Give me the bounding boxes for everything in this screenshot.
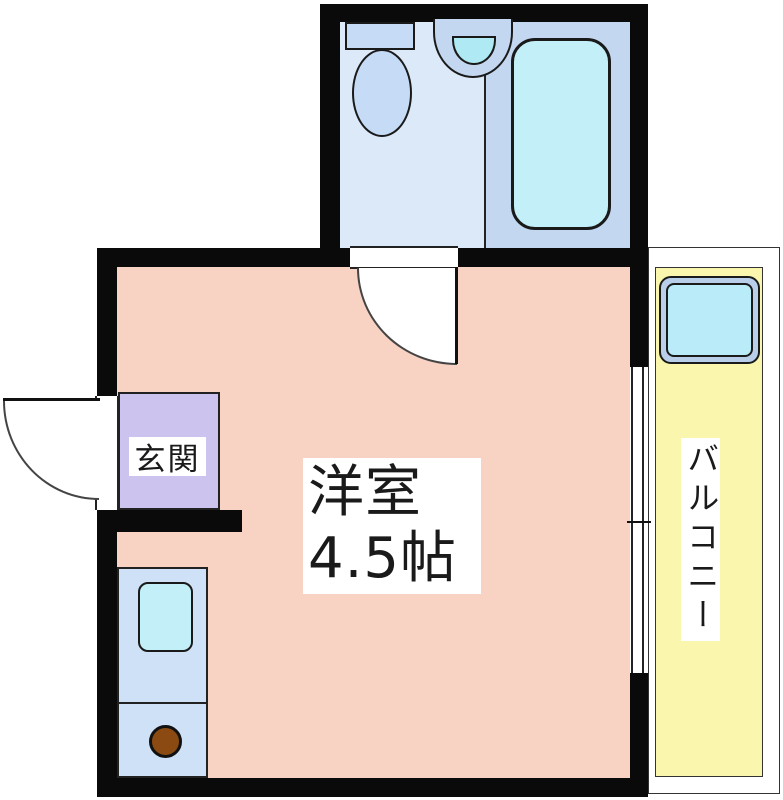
- entrance-door-leaf: [3, 398, 100, 401]
- balcony-window-latch-icon: [627, 521, 651, 523]
- toilet-icon: [352, 49, 412, 137]
- floor-plan: バルコニー 玄関 洋室 4.5帖: [0, 0, 783, 800]
- entrance-label: 玄関: [129, 437, 206, 476]
- kitchen-sink-icon: [138, 582, 193, 652]
- bathroom-wall-right: [630, 4, 648, 265]
- toilet-tank-icon: [345, 22, 415, 50]
- bathroom-door-opening: [350, 246, 458, 269]
- main-wall-left-upper: [97, 248, 117, 398]
- single-burner-icon: [149, 725, 182, 758]
- main-wall-left-lower: [97, 508, 117, 797]
- main-room-size: 4.5帖: [308, 526, 481, 592]
- bathroom-wall-left: [320, 4, 340, 265]
- bathtub-icon: [511, 38, 611, 230]
- balcony-window-frame-line: [631, 367, 633, 673]
- main-wall-bottom: [97, 778, 648, 797]
- balcony-label: バルコニー: [681, 438, 720, 641]
- bathroom-door-leaf: [455, 267, 458, 364]
- main-room-name: 洋室: [308, 460, 481, 526]
- main-room-label: 洋室 4.5帖: [303, 458, 481, 594]
- kitchen-counter-line: [118, 702, 207, 704]
- entrance-stub-wall: [97, 510, 242, 532]
- washing-machine-pan-inner-icon: [666, 283, 753, 357]
- balcony-window-meeting-line: [642, 367, 644, 673]
- entrance-door-swing-arc: [3, 401, 99, 500]
